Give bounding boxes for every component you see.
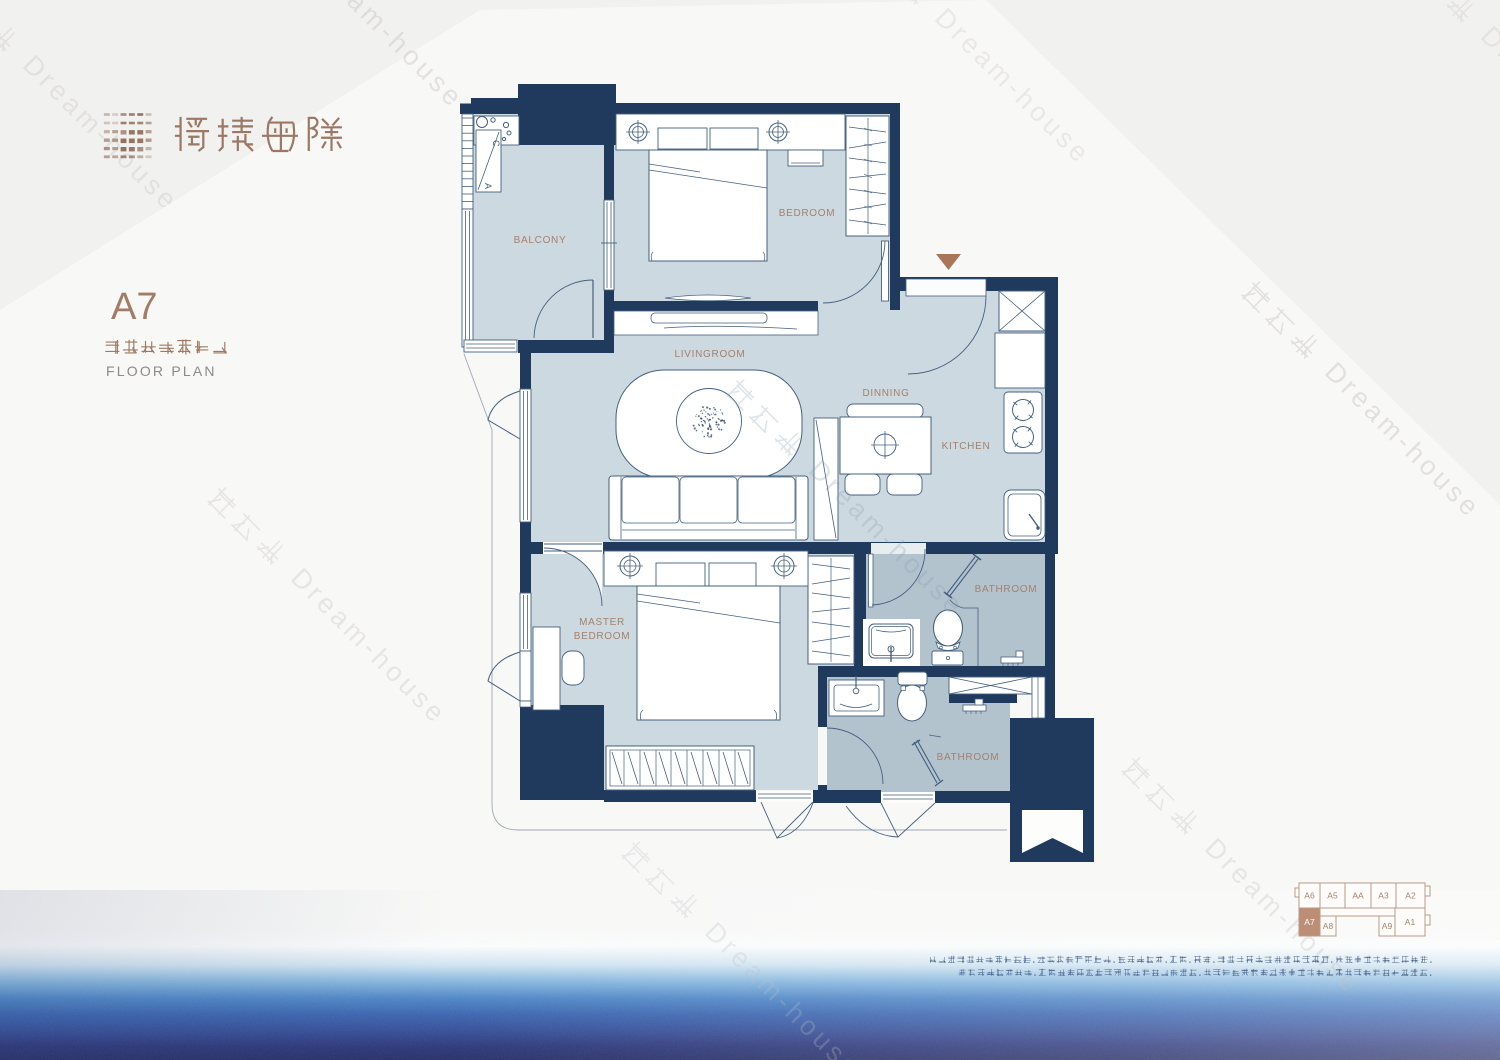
svg-text:C: C xyxy=(491,140,501,147)
svg-text:Dream-house: Dream-house xyxy=(699,916,867,1060)
svg-text:LIVINGROOM: LIVINGROOM xyxy=(675,349,746,360)
svg-text:BALCONY: BALCONY xyxy=(514,235,567,246)
svg-text:A5: A5 xyxy=(1327,891,1338,901)
svg-text:Dream-house: Dream-house xyxy=(929,2,1097,170)
svg-text:A3: A3 xyxy=(1378,891,1389,901)
svg-text:AA: AA xyxy=(1352,891,1364,901)
svg-text:BATHROOM: BATHROOM xyxy=(937,752,1000,763)
svg-text:MASTER: MASTER xyxy=(579,617,625,628)
svg-text:A6: A6 xyxy=(1304,891,1315,901)
svg-text:Dream-house: Dream-house xyxy=(302,0,470,114)
svg-text:A7: A7 xyxy=(1304,917,1315,927)
svg-text:Dream-house: Dream-house xyxy=(1319,356,1487,524)
svg-text:Dream-house: Dream-house xyxy=(1475,20,1500,188)
svg-text:A1: A1 xyxy=(1405,917,1416,927)
svg-text:A7: A7 xyxy=(111,286,157,328)
svg-text:A8: A8 xyxy=(1323,921,1334,931)
svg-text:DINNING: DINNING xyxy=(862,388,909,399)
svg-text:Dream-house: Dream-house xyxy=(285,562,453,730)
svg-text:BATHROOM: BATHROOM xyxy=(975,584,1038,595)
svg-text:A: A xyxy=(483,183,493,189)
svg-text:A2: A2 xyxy=(1405,891,1416,901)
svg-text:BEDROOM: BEDROOM xyxy=(574,631,631,642)
svg-text:A9: A9 xyxy=(1382,921,1393,931)
svg-text:KITCHEN: KITCHEN xyxy=(942,441,991,452)
svg-text:BEDROOM: BEDROOM xyxy=(779,208,836,219)
svg-text:FLOOR PLAN: FLOOR PLAN xyxy=(106,363,217,379)
